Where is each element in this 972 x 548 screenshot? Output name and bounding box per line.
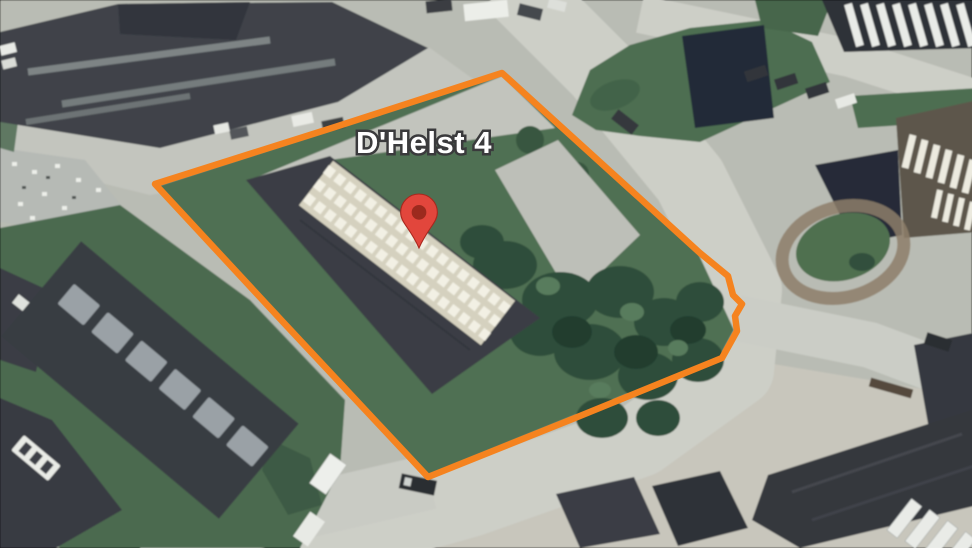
satellite-imagery (0, 0, 972, 548)
address-label: D'Helst 4 (356, 125, 492, 160)
satellite-map[interactable]: D'Helst 4 (0, 0, 972, 548)
